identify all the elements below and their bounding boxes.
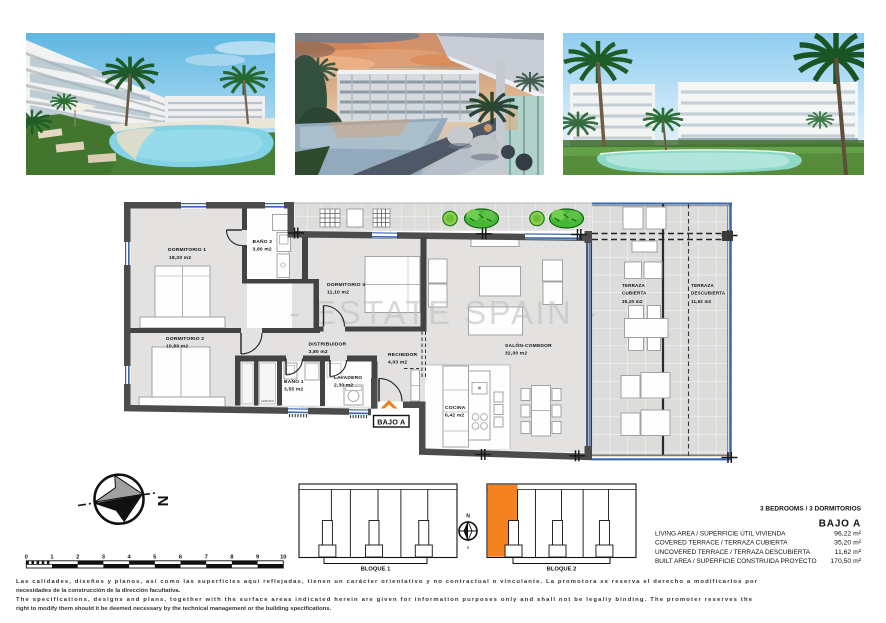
svg-text:BAJO A: BAJO A [819,519,861,530]
svg-text:BLOQUE 1: BLOQUE 1 [361,567,391,573]
svg-text:BUILT AREA / SUPERFICIE CONSTR: BUILT AREA / SUPERFICIE CONSTRUIDA PROYE… [655,558,816,565]
svg-text:10: 10 [280,555,286,561]
svg-text:6,42 m2: 6,42 m2 [445,413,464,419]
svg-text:1: 1 [50,555,54,561]
svg-text:DORMITORIO 2: DORMITORIO 2 [166,336,204,342]
svg-text:BLOQUE 2: BLOQUE 2 [547,567,577,573]
svg-text:6: 6 [179,555,183,561]
svg-text:10,80 m2: 10,80 m2 [166,344,188,350]
svg-text:4: 4 [127,555,131,561]
svg-text:Las calidades, diseños y plano: Las calidades, diseños y planos, así com… [16,579,758,585]
svg-text:18,20 m2: 18,20 m2 [169,255,191,261]
svg-text:LIVING AREA / SUPERFICIE ÚTIL: LIVING AREA / SUPERFICIE ÚTIL VIVIENDA [655,528,786,537]
svg-text:CUBIERTA: CUBIERTA [622,291,647,296]
svg-text:DISTRIBUIDOR: DISTRIBUIDOR [309,342,347,348]
svg-text:3,55 m2: 3,55 m2 [284,387,303,393]
svg-text:BAÑO 2: BAÑO 2 [253,238,273,245]
svg-text:32,30 m2: 32,30 m2 [505,351,527,357]
svg-text:necesidades de la construcción: necesidades de la construcción de la dir… [16,588,181,594]
svg-text:- ESTATE SPAIN -: - ESTATE SPAIN - [289,294,599,331]
svg-text:35,20 m²: 35,20 m² [834,540,862,547]
svg-text:3,80 m2: 3,80 m2 [253,247,272,253]
svg-text:RECIBIDOR: RECIBIDOR [388,352,418,358]
svg-text:ARMARIO: ARMARIO [261,399,275,403]
svg-text:UNCOVERED TERRACE / TERRAZA DE: UNCOVERED TERRACE / TERRAZA DESCUBIERTA [655,549,811,556]
svg-text:5: 5 [153,555,157,561]
svg-text:BAÑO 1: BAÑO 1 [284,378,304,385]
svg-text:0: 0 [25,555,28,561]
svg-text:3,80 m2: 3,80 m2 [309,349,328,355]
svg-text:TERRAZA: TERRAZA [622,283,645,288]
svg-text:11,62 m²: 11,62 m² [835,549,862,556]
svg-text:96,22 m²: 96,22 m² [834,530,862,537]
svg-text:2: 2 [76,555,79,561]
svg-text:2,30 m2: 2,30 m2 [334,383,353,389]
svg-text:DORMITORIO 3: DORMITORIO 3 [327,282,365,288]
svg-text:3 BEDROOMS / 3 DORMITORIOS: 3 BEDROOMS / 3 DORMITORIOS [760,506,862,513]
svg-text:right to modify them should it: right to modify them should it be deemed… [16,606,332,612]
svg-text:N: N [154,496,171,507]
svg-text:3: 3 [102,555,106,561]
svg-text:11,10 m2: 11,10 m2 [327,290,349,296]
svg-text:170,50 m²: 170,50 m² [830,558,861,565]
svg-text:COCINA: COCINA [445,405,466,411]
svg-text:The specifications, designs an: The specifications, designs and plans, t… [16,597,753,603]
svg-text:7: 7 [205,555,208,561]
svg-text:9: 9 [256,555,260,561]
svg-text:35,20 m2: 35,20 m2 [622,299,643,304]
svg-text:TERRAZA: TERRAZA [691,283,714,288]
svg-text:S: S [467,545,470,550]
svg-text:4,03 m2: 4,03 m2 [388,360,407,366]
svg-text:DESCUBIERTA: DESCUBIERTA [691,291,726,296]
svg-text:LAVADERO: LAVADERO [334,375,362,381]
svg-text:DORMITORIO 1: DORMITORIO 1 [168,247,206,253]
svg-text:COVERED TERRACE / TERRAZA CUBI: COVERED TERRACE / TERRAZA CUBIERTA [655,540,788,547]
svg-text:11,62 m2: 11,62 m2 [691,299,712,304]
svg-text:N: N [466,514,470,520]
svg-text:8: 8 [230,555,234,561]
svg-text:BAJO A: BAJO A [377,418,405,427]
